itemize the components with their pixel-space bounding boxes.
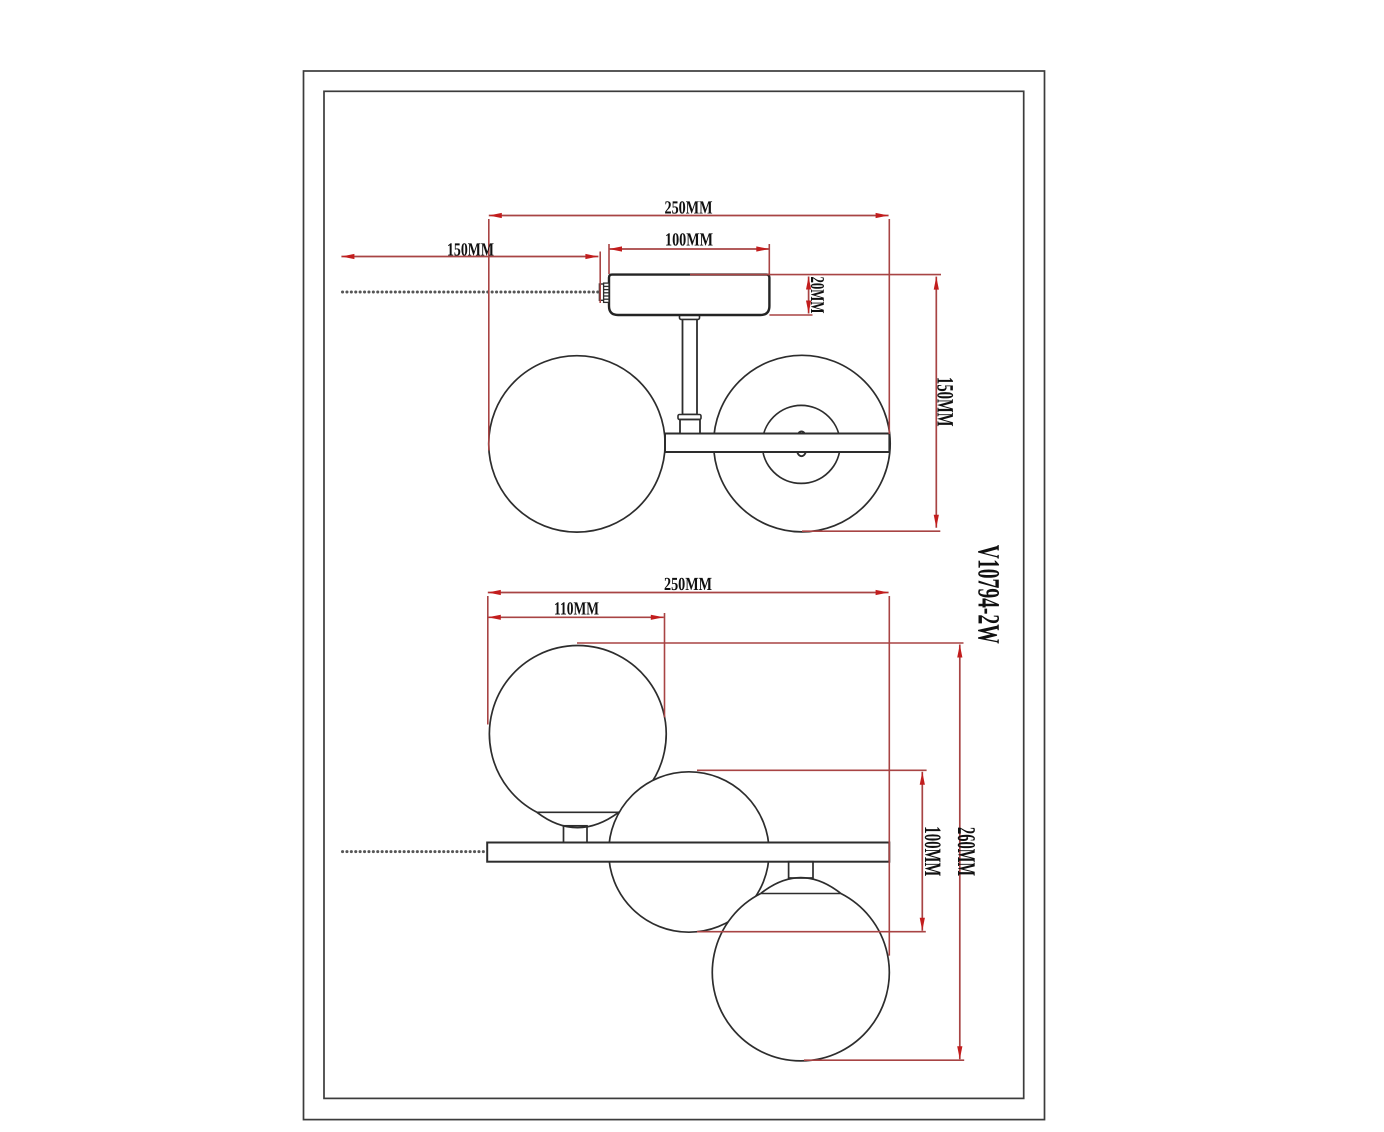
svg-text:110MM: 110MM [554,599,599,619]
svg-text:100MM: 100MM [919,826,945,876]
svg-text:100MM: 100MM [665,230,713,250]
svg-text:150MM: 150MM [931,377,957,427]
svg-text:150MM: 150MM [447,240,494,260]
svg-text:V10794-2W: V10794-2W [971,545,1006,644]
svg-text:260MM: 260MM [952,827,981,876]
svg-text:20MM: 20MM [806,277,827,314]
svg-text:250MM: 250MM [665,199,713,219]
svg-text:250MM: 250MM [664,575,712,595]
